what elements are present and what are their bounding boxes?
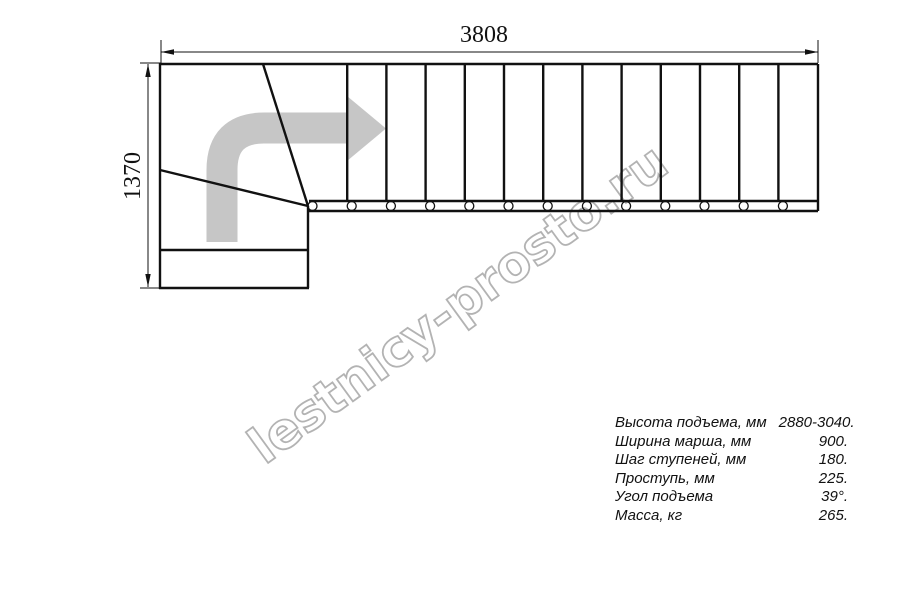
- baluster-icon: [347, 202, 356, 211]
- spec-value: 2880-3040.: [779, 414, 855, 433]
- spec-value: 39°.: [821, 488, 848, 507]
- step-lines: [347, 64, 778, 201]
- spec-value: 180.: [819, 451, 848, 470]
- baluster-icon: [504, 202, 513, 211]
- baluster-icon: [465, 202, 474, 211]
- top-dimension-label: 3808: [460, 22, 508, 48]
- baluster-icon: [700, 202, 709, 211]
- spec-label: Высота подъема, мм: [615, 414, 767, 433]
- watermark-text: lestnicy-prosto.ru: [238, 133, 679, 475]
- spec-row: Высота подъема, мм2880-3040.: [615, 414, 848, 433]
- dimension-arrow-left-icon: [161, 49, 174, 54]
- baluster-icon: [778, 202, 787, 211]
- dimension-arrow-down-icon: [145, 274, 150, 287]
- spec-label: Проступь, мм: [615, 470, 715, 489]
- watermark: lestnicy-prosto.ru: [238, 133, 679, 475]
- drawing-canvas: lestnicy-prosto.ru: [0, 0, 900, 600]
- spec-row: Угол подъема39°.: [615, 488, 848, 507]
- spec-label: Ширина марша, мм: [615, 433, 751, 452]
- spec-row: Ширина марша, мм900.: [615, 433, 848, 452]
- spec-label: Шаг ступеней, мм: [615, 451, 746, 470]
- spec-row: Проступь, мм225.: [615, 470, 848, 489]
- direction-arrow-icon: [222, 96, 386, 242]
- direction-arrow-head: [347, 96, 386, 161]
- spec-value: 900.: [819, 433, 848, 452]
- spec-table: Высота подъема, мм2880-3040.Ширина марша…: [615, 414, 848, 526]
- spec-value: 225.: [819, 470, 848, 489]
- spec-row: Масса, кг265.: [615, 507, 848, 526]
- dimension-arrow-right-icon: [805, 49, 818, 54]
- direction-arrow-shaft: [222, 128, 347, 242]
- left-dimension-label: 1370: [120, 152, 146, 200]
- baluster-icon: [386, 202, 395, 211]
- baluster-icon: [426, 202, 435, 211]
- baluster-icon: [308, 202, 317, 211]
- spec-label: Масса, кг: [615, 507, 682, 526]
- spec-row: Шаг ступеней, мм180.: [615, 451, 848, 470]
- spec-value: 265.: [819, 507, 848, 526]
- baluster-icon: [661, 202, 670, 211]
- dimension-arrow-up-icon: [145, 64, 150, 77]
- baluster-icon: [739, 202, 748, 211]
- spec-label: Угол подъема: [615, 488, 713, 507]
